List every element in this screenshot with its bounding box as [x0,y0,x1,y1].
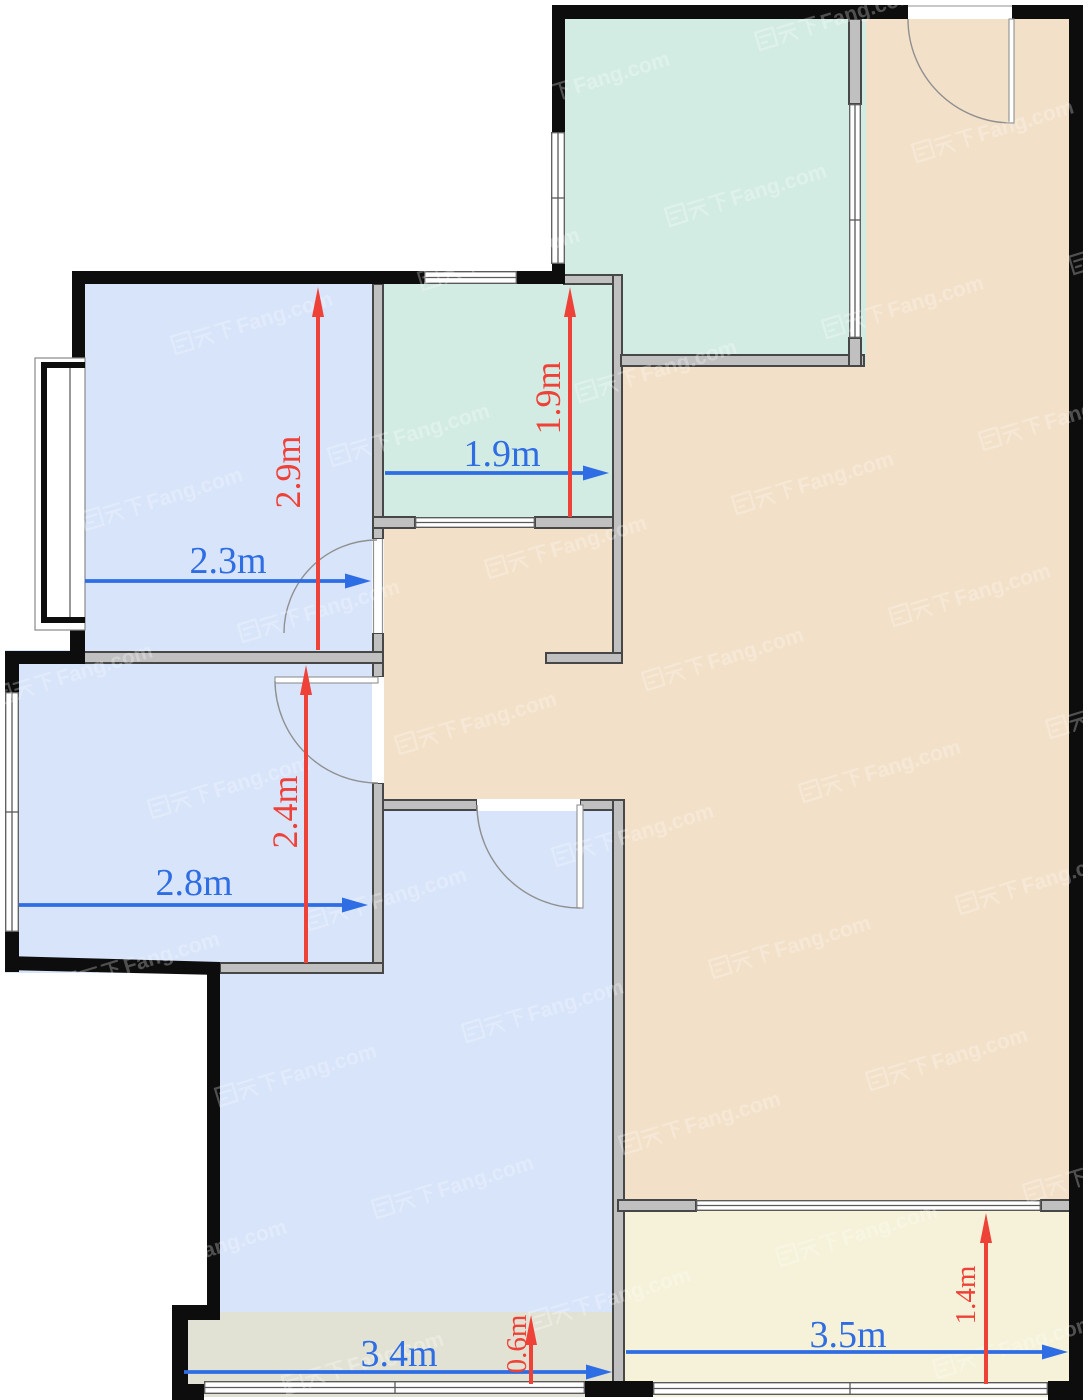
svg-text:2.8m: 2.8m [155,862,232,904]
svg-text:3.5m: 3.5m [809,1314,886,1356]
svg-text:2.3m: 2.3m [189,540,266,582]
svg-text:1.9m: 1.9m [463,433,540,475]
svg-text:1.9m: 1.9m [528,361,568,434]
svg-text:2.9m: 2.9m [268,435,308,508]
svg-text:3.4m: 3.4m [360,1333,437,1375]
svg-text:2.4m: 2.4m [265,775,305,848]
svg-text:1.4m: 1.4m [950,1265,982,1324]
svg-text:0.6m: 0.6m [501,1314,533,1373]
